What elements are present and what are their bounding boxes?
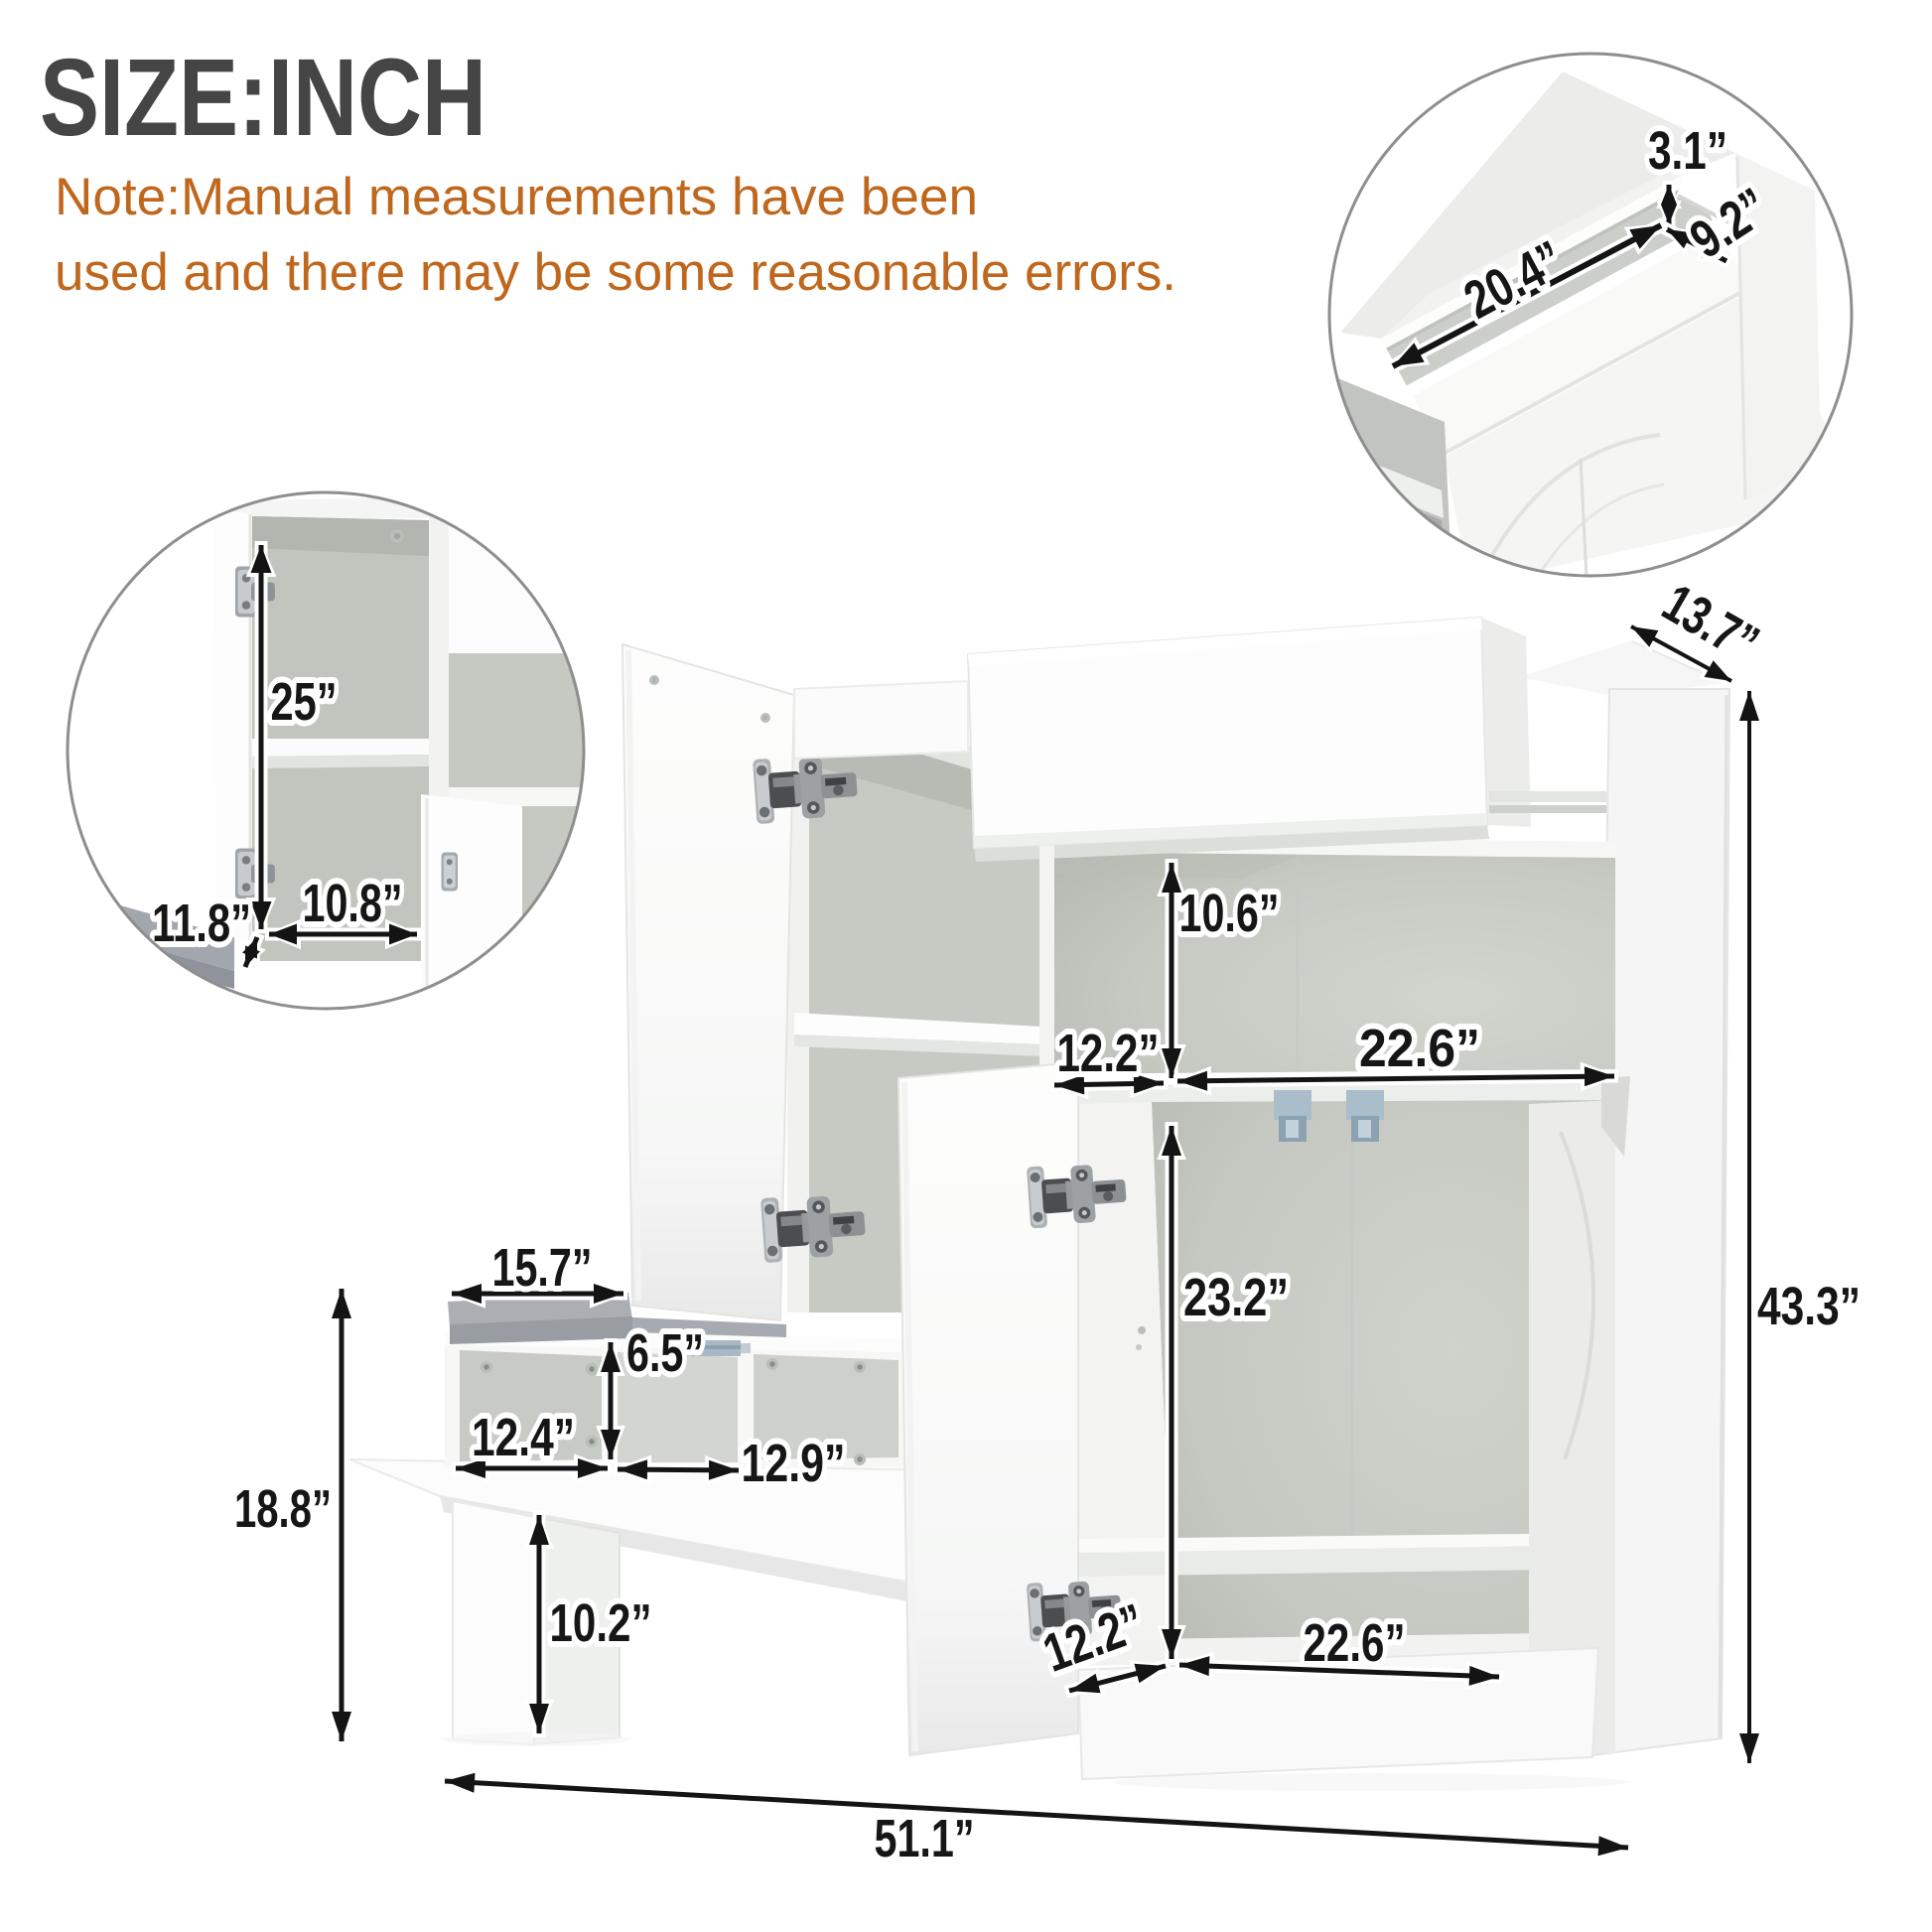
svg-text:10.2”: 10.2” bbox=[550, 1593, 652, 1653]
svg-text:used and there may be some rea: used and there may be some reasonable er… bbox=[55, 243, 1176, 302]
svg-text:25”: 25” bbox=[271, 672, 338, 732]
svg-text:11.8”: 11.8” bbox=[152, 894, 251, 953]
svg-text:18.8”: 18.8” bbox=[234, 1479, 332, 1539]
svg-text:22.6”: 22.6” bbox=[1304, 1613, 1406, 1673]
svg-text:15.7”: 15.7” bbox=[492, 1238, 593, 1298]
svg-text:6.5”: 6.5” bbox=[626, 1323, 704, 1383]
svg-text:SIZE:INCH: SIZE:INCH bbox=[40, 37, 486, 159]
svg-text:Note:Manual measurements have: Note:Manual measurements have been bbox=[55, 168, 978, 226]
svg-text:10.8”: 10.8” bbox=[303, 874, 403, 933]
svg-text:3.1”: 3.1” bbox=[1648, 121, 1727, 181]
svg-text:12.4”: 12.4” bbox=[472, 1408, 575, 1467]
svg-text:10.6”: 10.6” bbox=[1179, 884, 1280, 943]
svg-text:23.2”: 23.2” bbox=[1183, 1268, 1289, 1327]
svg-text:43.3”: 43.3” bbox=[1757, 1277, 1861, 1336]
svg-text:22.6”: 22.6” bbox=[1359, 1019, 1480, 1078]
svg-text:12.9”: 12.9” bbox=[742, 1434, 846, 1493]
svg-text:12.2”: 12.2” bbox=[1057, 1024, 1160, 1083]
svg-text:51.1”: 51.1” bbox=[875, 1809, 975, 1868]
